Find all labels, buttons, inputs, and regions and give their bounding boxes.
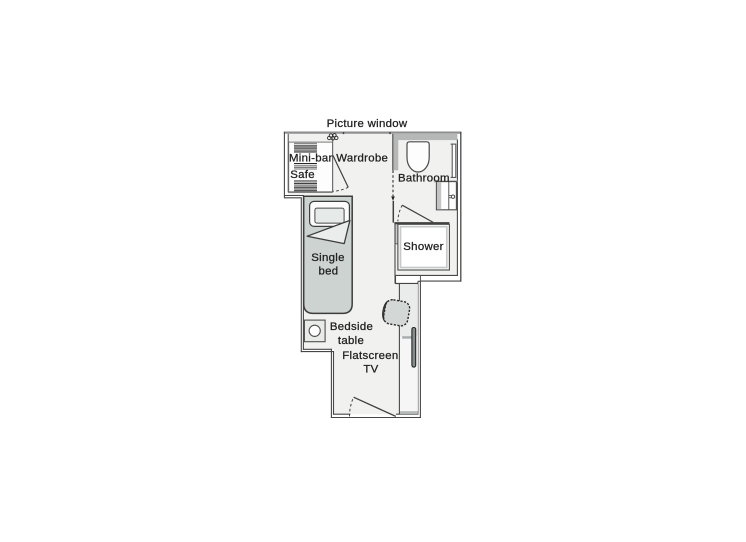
svg-text:Shower: Shower <box>403 241 443 253</box>
svg-text:Flatscreen: Flatscreen <box>342 350 398 362</box>
svg-text:Bathroom: Bathroom <box>398 172 450 184</box>
svg-text:Wardrobe: Wardrobe <box>336 153 388 165</box>
svg-text:bed: bed <box>318 266 338 278</box>
svg-text:Single: Single <box>311 252 344 264</box>
svg-text:Picture window: Picture window <box>327 118 408 130</box>
svg-text:Safe: Safe <box>290 169 315 181</box>
svg-text:Mini-bar: Mini-bar <box>289 153 333 165</box>
svg-text:Bedside: Bedside <box>330 321 373 333</box>
svg-text:TV: TV <box>363 364 378 376</box>
svg-text:table: table <box>338 335 364 347</box>
